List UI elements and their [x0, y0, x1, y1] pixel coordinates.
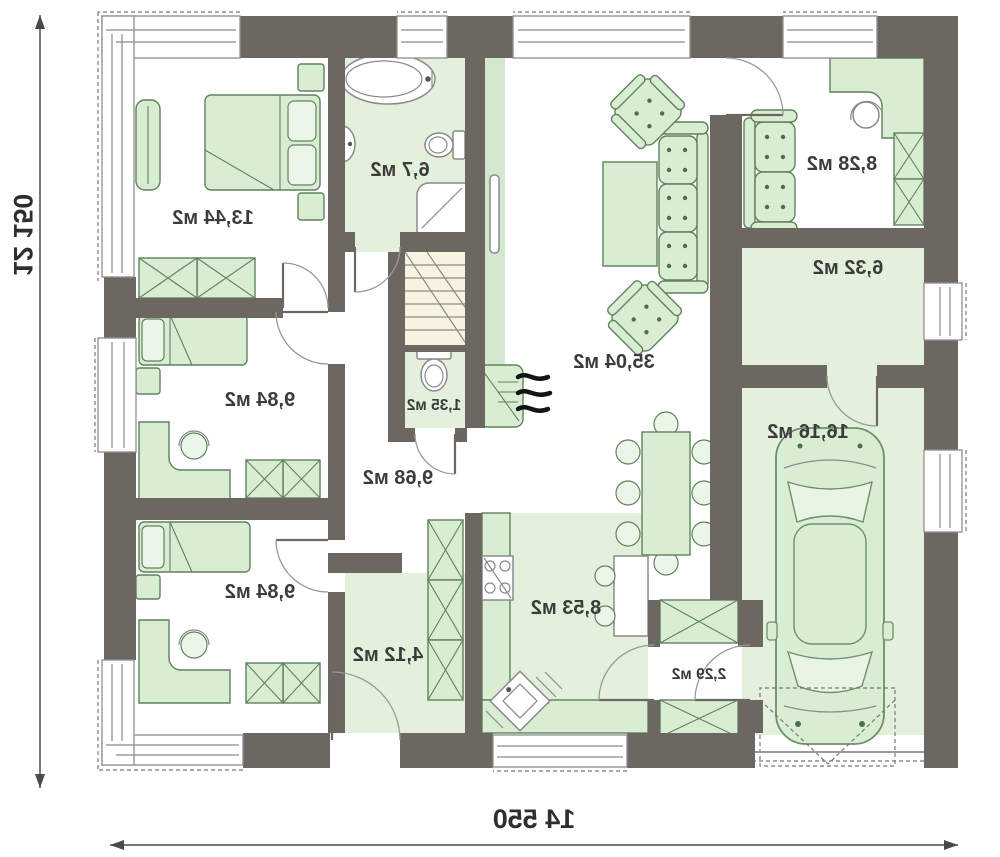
bedside-cabinet [298, 193, 324, 220]
bedside-cabinet [136, 368, 160, 394]
room-label-bedroom-low: 9,84 м2 [225, 581, 295, 603]
sofa-two-seat [744, 110, 797, 234]
counter [482, 513, 510, 700]
window [924, 450, 966, 532]
pillow [142, 319, 164, 361]
room-label-bedroom-mid: 9,84 м2 [225, 389, 295, 411]
bedside-cabinet [136, 575, 160, 599]
window [493, 735, 627, 771]
sofa-three-seat [658, 122, 708, 293]
toilet [425, 131, 465, 159]
dimension-height-label: 12 150 [8, 194, 38, 277]
window [95, 338, 136, 452]
chair [181, 433, 207, 459]
dimension-bottom: 14 550 [110, 804, 958, 850]
room-label-kitchen: 8,53 м2 [531, 597, 601, 619]
car [767, 428, 893, 744]
floor-plan-drawing: 13,44 м2 6,7 м2 8,28 м2 6,32 м2 16,16 м2… [0, 0, 1000, 857]
window [924, 283, 966, 340]
room-label-corridor: 9,68 м2 [363, 467, 433, 489]
window [783, 12, 877, 58]
room-label-living: 35,04 м2 [573, 351, 655, 373]
room-label-bedroom-large: 13,44 м2 [172, 207, 254, 229]
dimension-width-label: 14 550 [493, 804, 576, 834]
shower [417, 183, 467, 233]
car-mirror [767, 622, 777, 640]
stool [595, 566, 615, 586]
coffee-table [603, 162, 657, 266]
office-chair [853, 102, 879, 128]
room-label-garage: 16,16 м2 [767, 421, 849, 443]
entry-hall-wardrobes [428, 520, 463, 700]
dimension-side: 12 150 [8, 15, 45, 788]
bedside-cabinet [298, 64, 324, 91]
room-label-office: 8,28 м2 [807, 153, 877, 175]
floor-plan-page: 13,44 м2 6,7 м2 8,28 м2 6,32 м2 16,16 м2… [0, 0, 1000, 857]
room-label-entry: 4,12 м2 [353, 644, 423, 666]
pillow [288, 145, 316, 185]
window [397, 12, 447, 58]
room-label-wc: 1,35 м2 [407, 397, 462, 414]
chair [181, 632, 207, 658]
radiator [490, 175, 499, 253]
wardrobe [139, 258, 255, 298]
room-label-bathroom: 6,7 м2 [370, 159, 429, 181]
window [513, 12, 690, 58]
wardrobe [246, 663, 320, 703]
pillow [288, 101, 316, 141]
pillow [142, 526, 164, 568]
wardrobe [246, 460, 320, 498]
car-mirror [883, 622, 893, 640]
room-label-boiler: 6,32 м2 [813, 257, 883, 279]
kitchen-table [614, 556, 648, 636]
wardrobe [894, 133, 924, 225]
stove [482, 556, 513, 600]
room-label-mudroom: 2,29 м2 [672, 666, 727, 683]
mirrored-plan-wrapper: 13,44 м2 6,7 м2 8,28 м2 6,32 м2 16,16 м2… [0, 0, 1000, 857]
dining-table [642, 432, 690, 555]
